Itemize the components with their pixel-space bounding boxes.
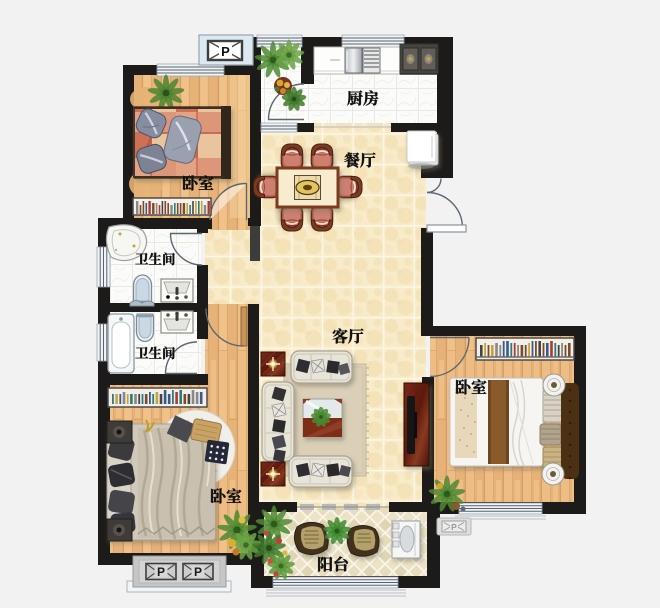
svg-text:P: P (157, 565, 165, 579)
svg-text:P: P (451, 522, 457, 532)
svg-text:P: P (221, 44, 230, 59)
svg-text:P: P (194, 565, 202, 579)
